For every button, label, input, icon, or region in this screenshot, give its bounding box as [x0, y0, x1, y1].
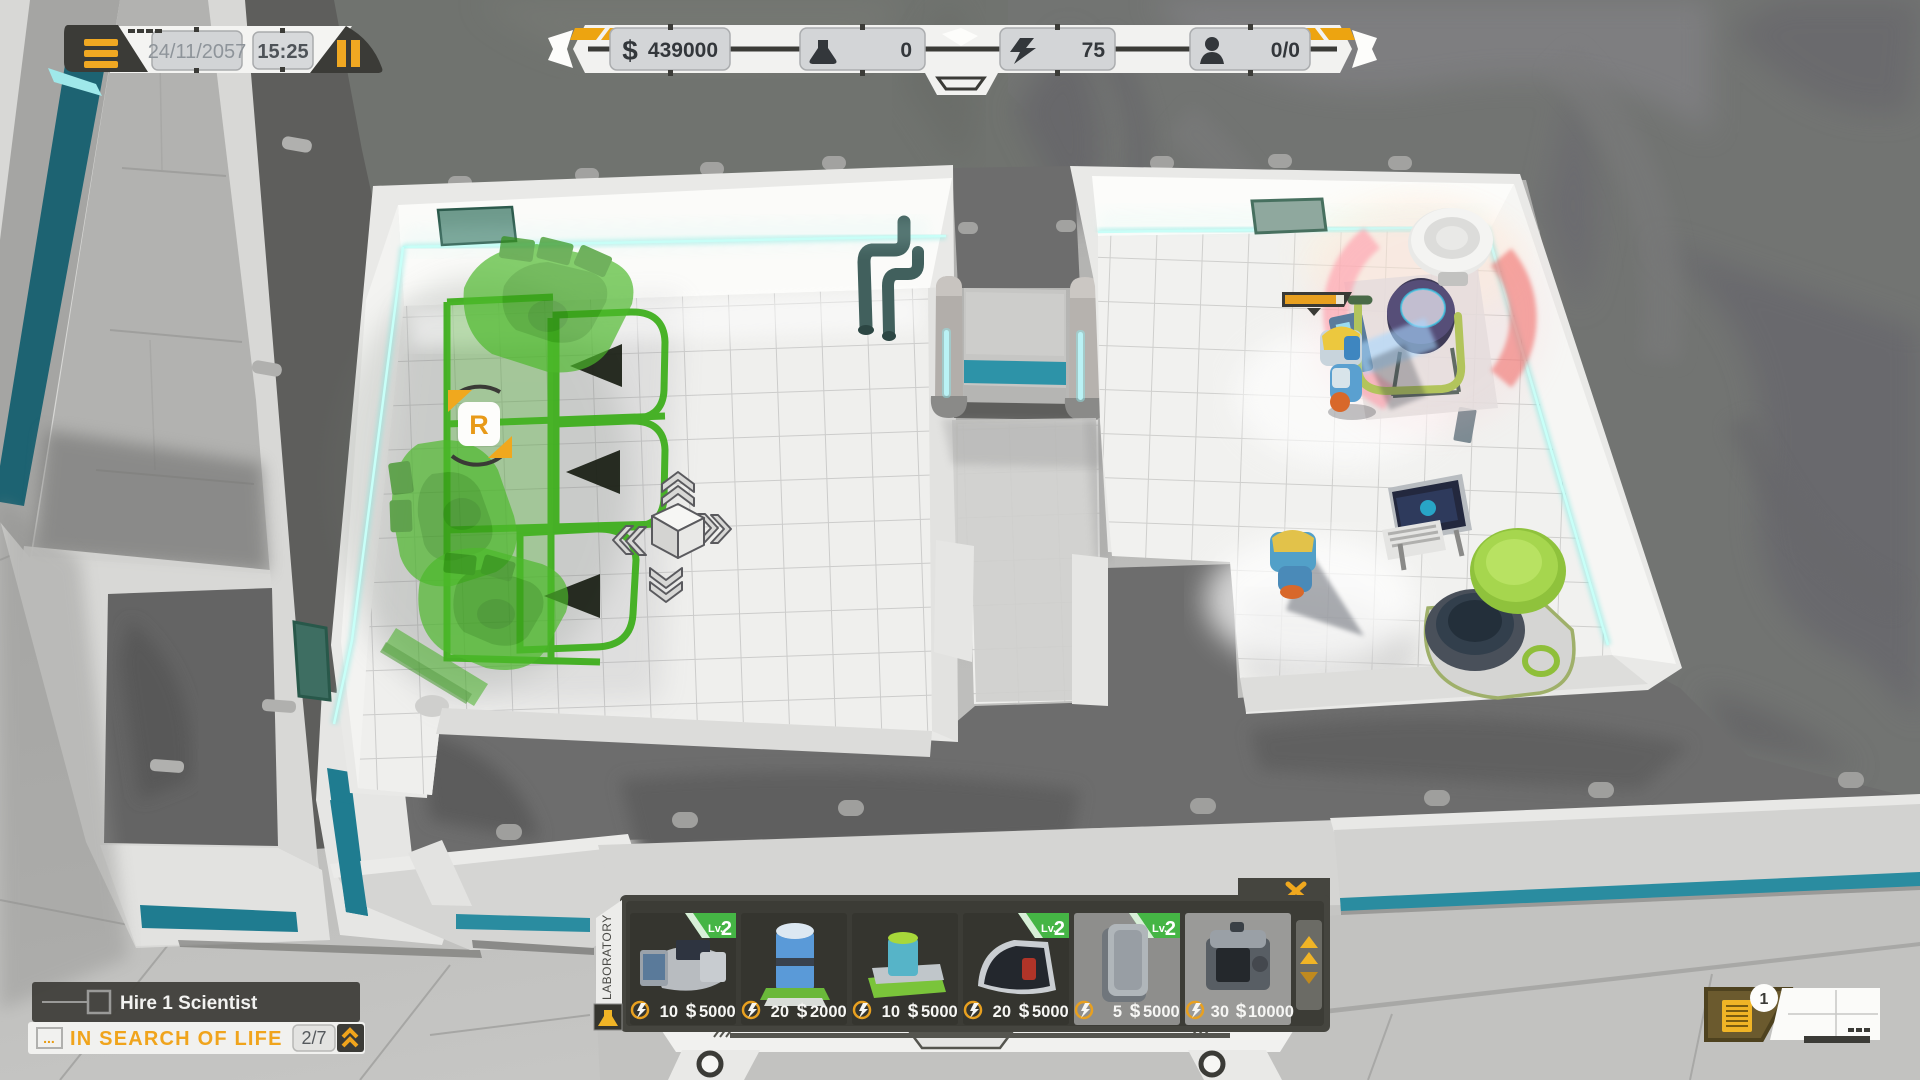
svg-text:0/0: 0/0 — [1271, 39, 1300, 62]
svg-text:$: $ — [797, 1001, 808, 1022]
svg-text:24/11/2057: 24/11/2057 — [148, 41, 247, 63]
svg-text:$: $ — [1236, 1001, 1247, 1022]
svg-text:IN SEARCH OF LIFE: IN SEARCH OF LIFE — [70, 1028, 283, 1050]
svg-text:5000: 5000 — [1143, 1003, 1180, 1021]
svg-text:5000: 5000 — [921, 1003, 958, 1021]
svg-text:5000: 5000 — [1032, 1003, 1069, 1021]
svg-text:2: 2 — [1054, 918, 1065, 940]
svg-text:15:25: 15:25 — [257, 41, 308, 63]
svg-text:0: 0 — [900, 39, 912, 62]
svg-text:10000: 10000 — [1248, 1003, 1294, 1021]
svg-text:5000: 5000 — [699, 1003, 736, 1021]
svg-text:2/7: 2/7 — [301, 1028, 326, 1048]
svg-text:10: 10 — [660, 1003, 678, 1021]
svg-text:$: $ — [686, 1001, 697, 1022]
svg-text:Hire 1 Scientist: Hire 1 Scientist — [120, 993, 258, 1014]
svg-text:10: 10 — [882, 1003, 900, 1021]
svg-text:...: ... — [43, 1030, 55, 1046]
svg-text:$: $ — [622, 35, 638, 66]
svg-text:30: 30 — [1211, 1003, 1229, 1021]
svg-text:$: $ — [908, 1001, 919, 1022]
svg-text:439000: 439000 — [648, 39, 718, 62]
svg-text:$: $ — [1130, 1001, 1141, 1022]
svg-text:2: 2 — [1165, 918, 1176, 940]
svg-text:20: 20 — [771, 1003, 789, 1021]
svg-text:5: 5 — [1113, 1003, 1122, 1021]
svg-text:1: 1 — [1760, 991, 1769, 1008]
svg-text:2000: 2000 — [810, 1003, 847, 1021]
svg-text:75: 75 — [1082, 39, 1106, 62]
svg-text:2: 2 — [721, 918, 732, 940]
svg-text:LABORATORY: LABORATORY — [600, 914, 614, 1000]
svg-text:20: 20 — [993, 1003, 1011, 1021]
svg-text:$: $ — [1019, 1001, 1030, 1022]
